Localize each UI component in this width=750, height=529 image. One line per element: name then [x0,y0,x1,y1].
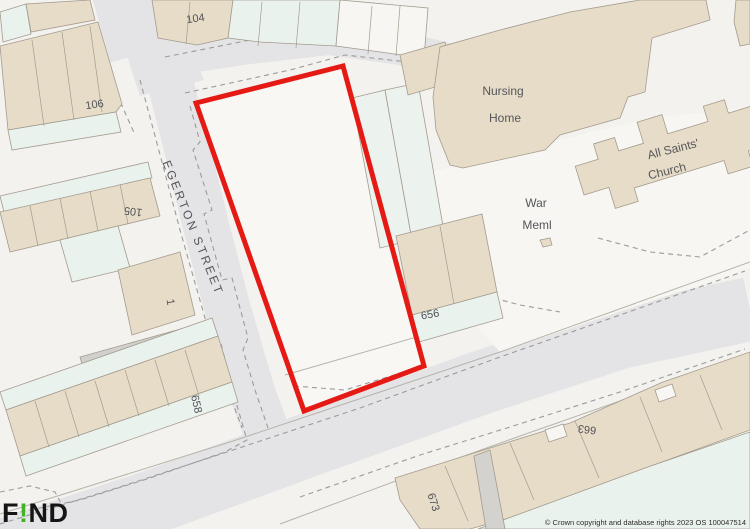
plot-label-663: 663 [577,422,597,436]
building-rear [228,0,340,46]
logo-exclamation: ! [19,498,29,528]
war-memorial-label-line2: Meml [522,218,551,232]
plot-label-105: 105 [123,204,143,218]
site-plan-map[interactable]: 104 106 105 1 658 656 663 673 EGERTON ST… [0,0,750,529]
find-logo: F!ND [2,500,69,527]
nursing-home-label-line1: Nursing [482,84,523,98]
plot-label-104: 104 [186,12,206,26]
war-memorial-label-line1: War [525,196,547,210]
logo-text-f: F [2,498,19,528]
plot-label-106: 106 [85,98,105,112]
logo-text-nd: ND [29,498,69,528]
os-copyright-attribution: © Crown copyright and database rights 20… [545,518,746,527]
nursing-home-label-line2: Home [489,111,521,125]
map-canvas: 104 106 105 1 658 656 663 673 EGERTON ST… [0,0,750,529]
